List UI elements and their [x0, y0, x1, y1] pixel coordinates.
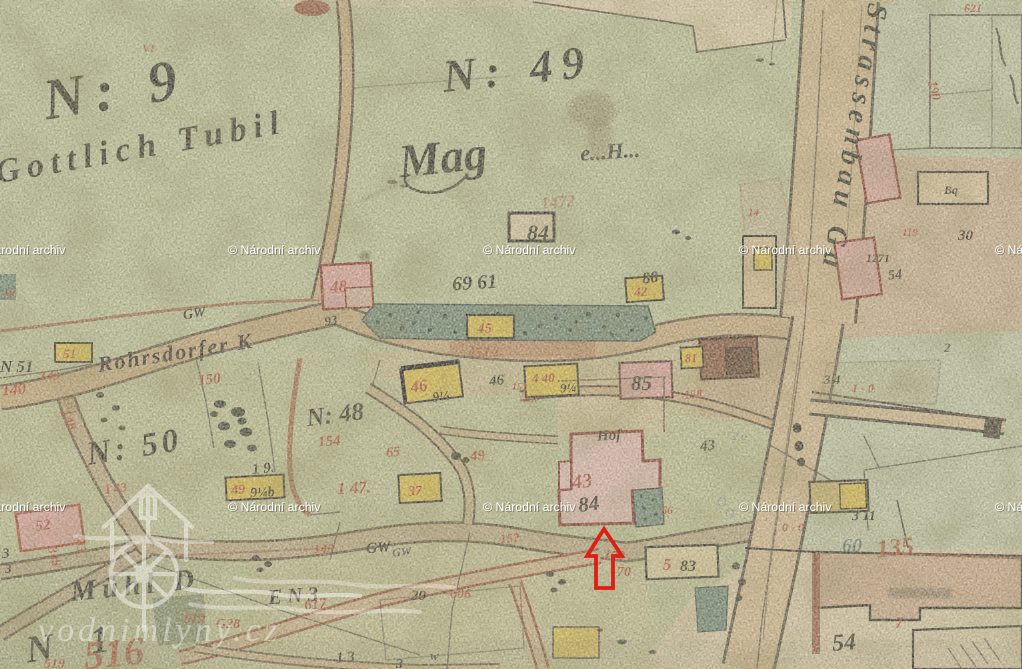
- svg-text:© Národní archiv: © Národní archiv: [739, 243, 832, 257]
- svg-text:© Národní archiv: © Národní archiv: [228, 243, 321, 257]
- svg-text:© Národní archiv: © Národní archiv: [0, 500, 66, 514]
- svg-text:© Národní archiv: © Národní archiv: [739, 500, 832, 514]
- svg-text:© Národní archiv: © Národní archiv: [995, 500, 1022, 514]
- svg-text:© Národní archiv: © Národní archiv: [0, 243, 66, 257]
- svg-text:© Národní archiv: © Národní archiv: [228, 500, 321, 514]
- svg-text:© Národní archiv: © Národní archiv: [483, 243, 576, 257]
- svg-text:© Národní archiv: © Národní archiv: [483, 500, 576, 514]
- svg-text:© Národní archiv: © Národní archiv: [995, 243, 1022, 257]
- svg-text:vodnimlyny.cz: vodnimlyny.cz: [38, 612, 282, 649]
